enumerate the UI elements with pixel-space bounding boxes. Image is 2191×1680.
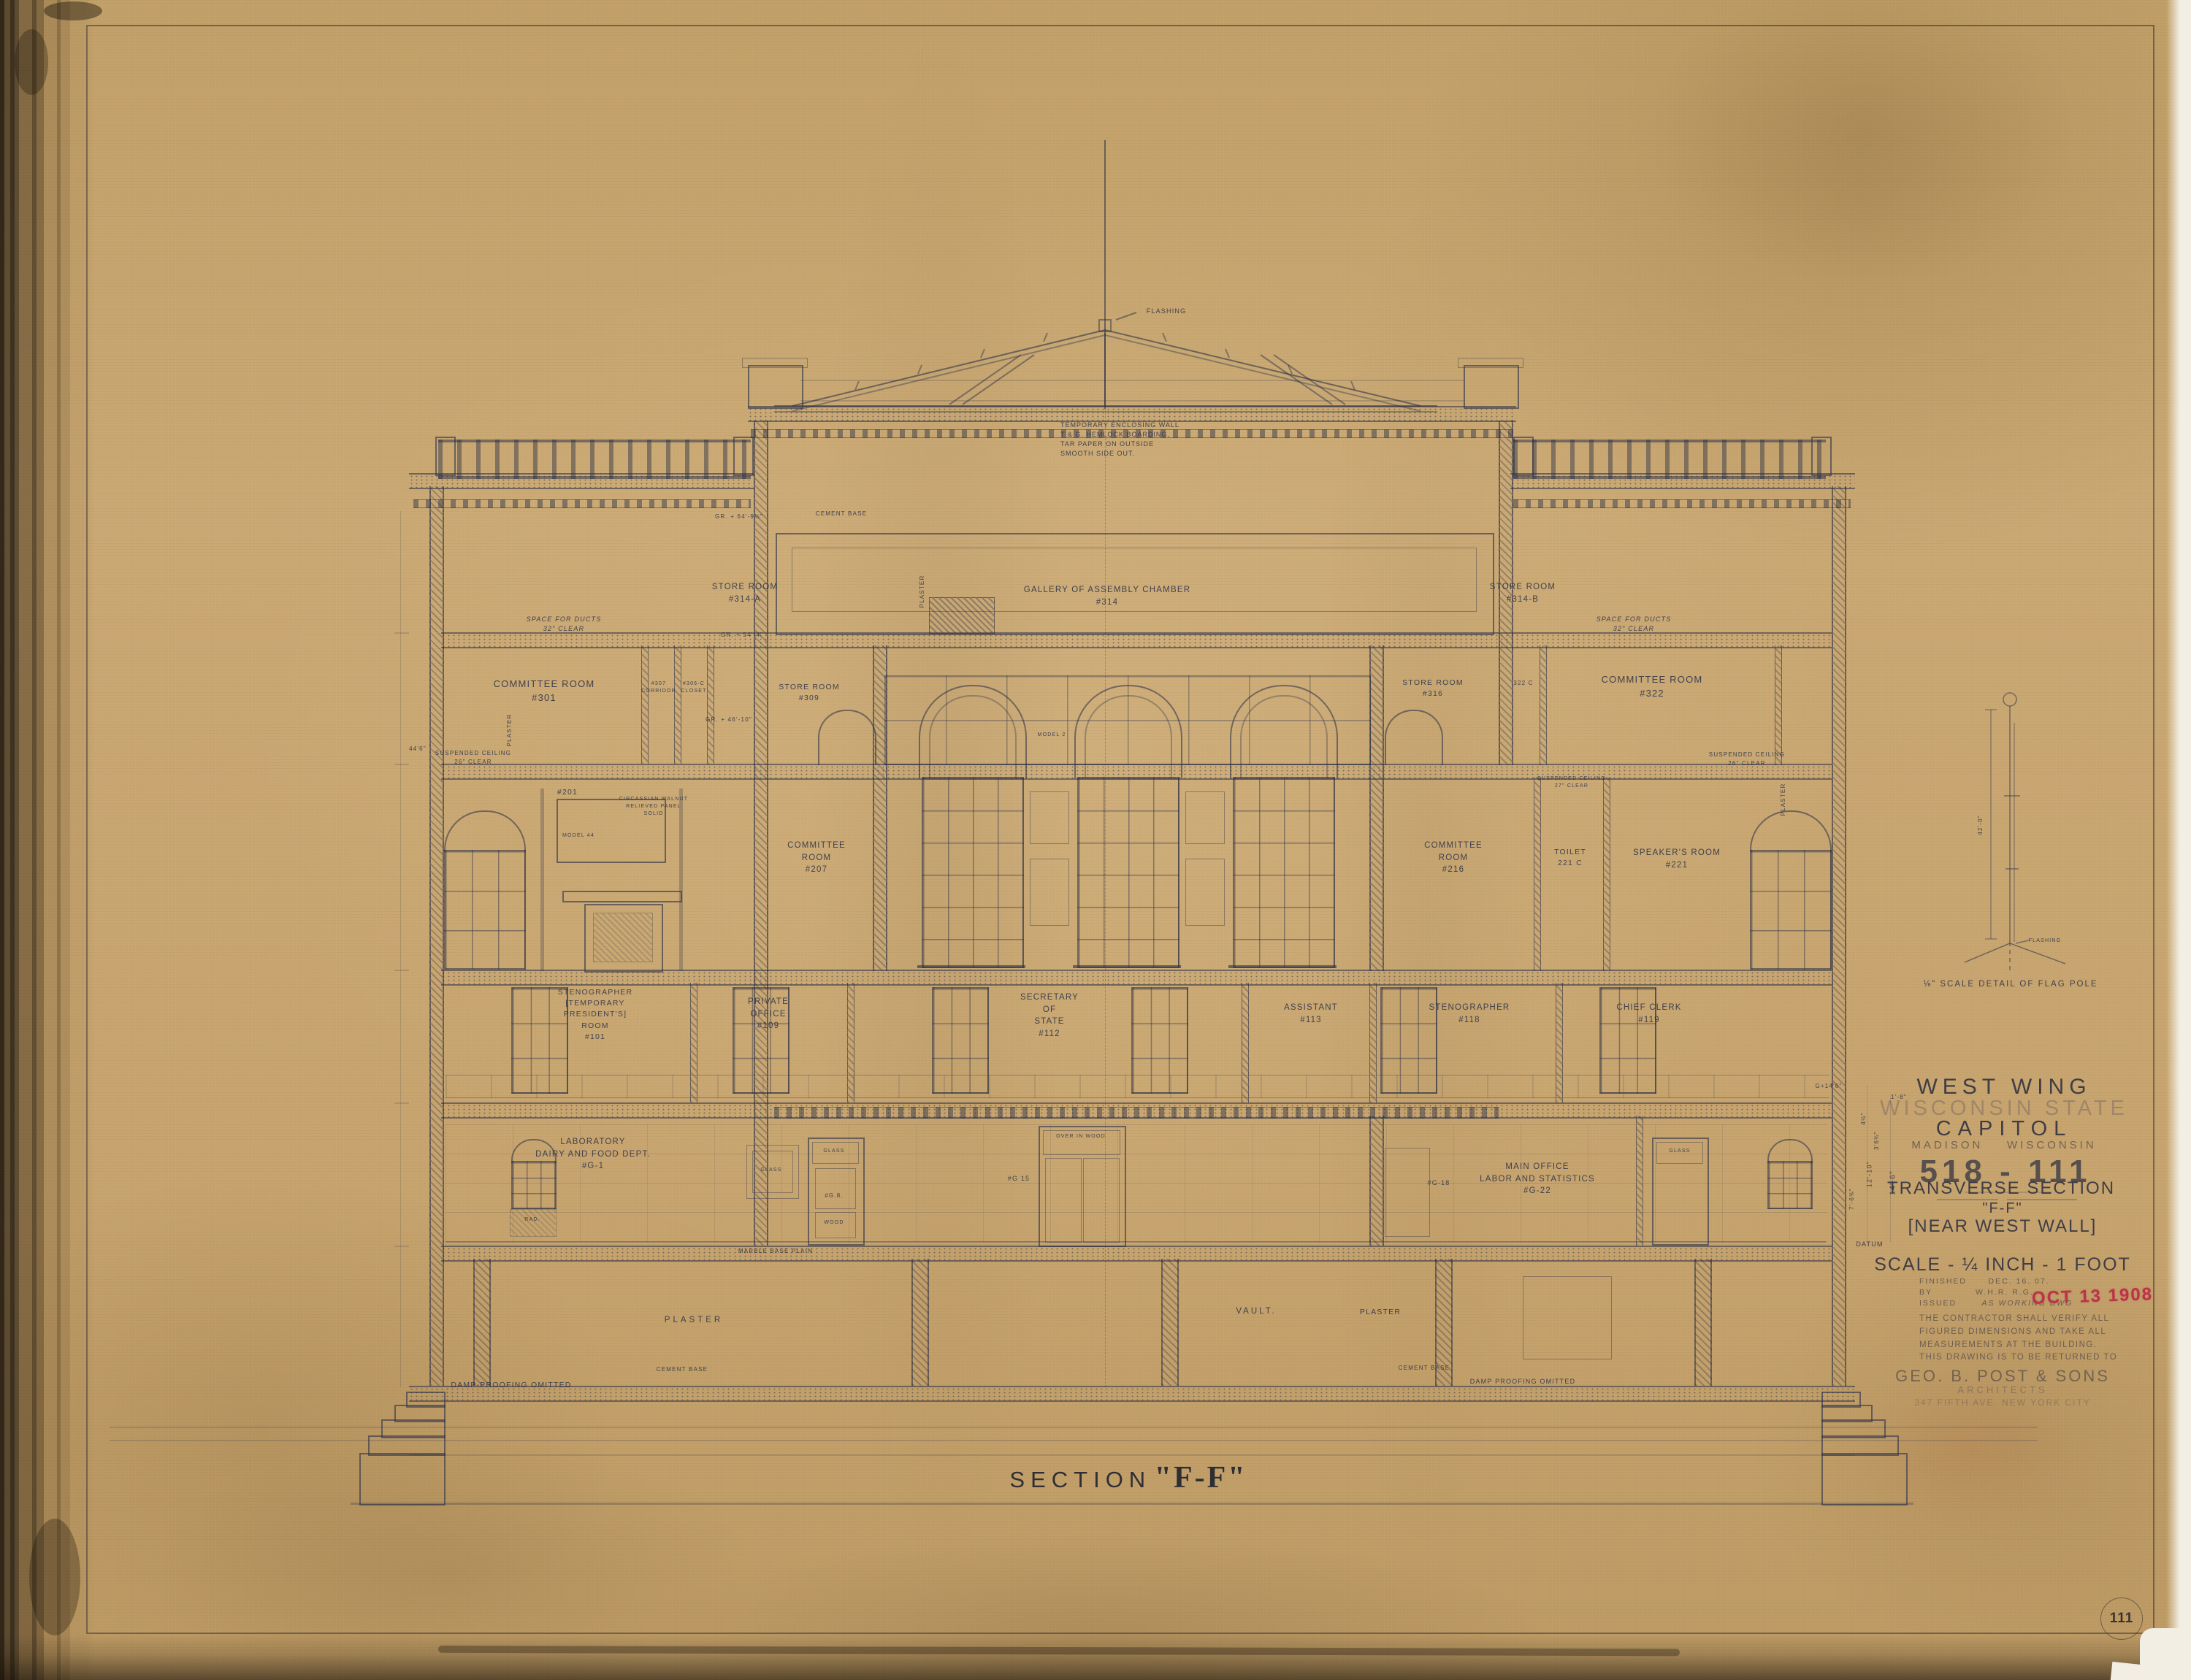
edge-smudge <box>15 29 48 95</box>
edge-smudge <box>44 1 102 20</box>
edge-smudge <box>29 1519 80 1635</box>
torn-white-edge <box>2166 0 2191 1680</box>
bottom-edge-band <box>0 1634 2191 1680</box>
blueprint-sheet: FLASHING TEMPORARY ENCLOSING WALL T & G.… <box>0 0 2191 1680</box>
cloth-selvage-edge <box>0 0 95 1680</box>
border-frame <box>86 25 2154 1634</box>
